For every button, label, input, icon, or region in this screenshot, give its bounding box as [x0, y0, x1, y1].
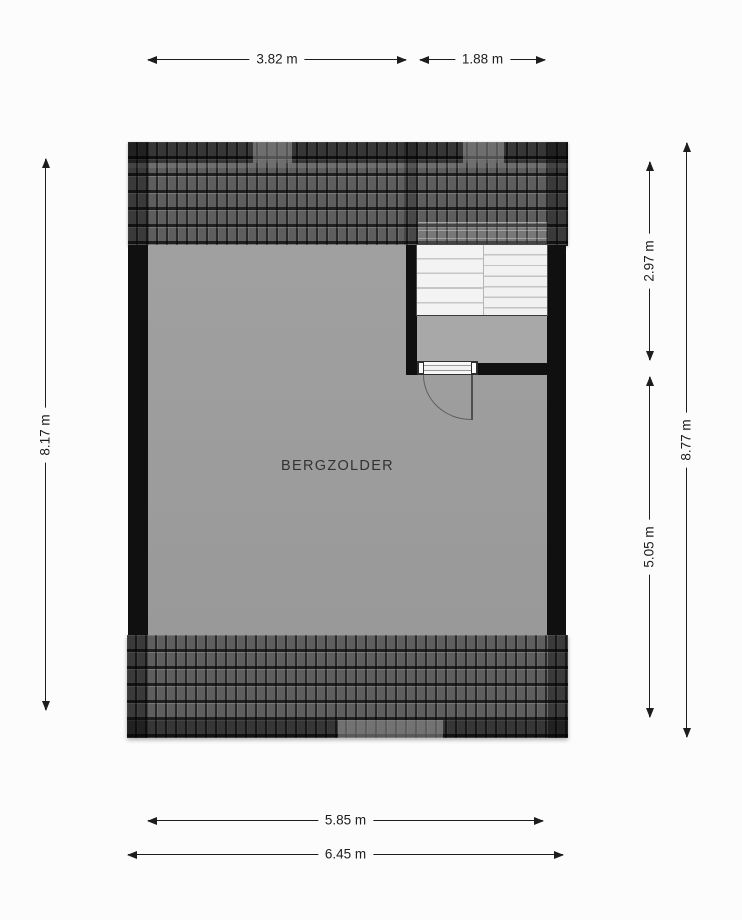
stair-landing	[417, 315, 547, 363]
roof-bottom-eave-shading	[127, 720, 568, 738]
dimension-label: 1.88 m	[455, 52, 510, 69]
dimension-bottom-outer-width: 6.45 m	[128, 854, 563, 855]
dimension-bottom-inner-width: 5.85 m	[148, 820, 543, 821]
dimension-right-stairwell-depth: 2.97 m	[649, 162, 650, 360]
roof-top-left-edge	[128, 142, 149, 246]
dimension-right-total-height: 8.77 m	[686, 143, 687, 737]
arrow-down-icon	[646, 351, 654, 361]
dimension-label: 2.97 m	[642, 233, 659, 288]
staircase	[417, 245, 547, 315]
arrow-up-icon	[42, 158, 50, 168]
door-panel-line	[471, 375, 473, 420]
dimension-left-height: 8.17 m	[45, 159, 46, 710]
dimension-label: 8.17 m	[38, 407, 55, 462]
stair-flight-right	[484, 245, 547, 315]
arrow-left-icon	[147, 56, 157, 64]
arrow-up-icon	[646, 376, 654, 386]
dimension-label: 5.85 m	[318, 813, 373, 830]
dimension-label: 5.05 m	[642, 519, 659, 574]
door-post-left	[418, 362, 424, 374]
dimension-top-stair-width: 1.88 m	[420, 59, 545, 60]
dimension-label: 6.45 m	[318, 847, 373, 864]
roof-top-right-edge	[548, 142, 568, 246]
roof-window-left	[253, 142, 292, 163]
arrow-up-icon	[683, 142, 691, 152]
stair-flight-left	[417, 245, 484, 315]
arrow-left-icon	[147, 817, 157, 825]
roof-top	[128, 142, 568, 246]
staircase-under-roof	[418, 222, 547, 246]
roof-seam	[404, 142, 418, 246]
arrow-right-icon	[534, 817, 544, 825]
floor-plan: BERGZOLDER 3.82 m 1.88 m 8.17 m 2.97 m 5…	[0, 0, 742, 920]
wall-stairwell-bottom	[477, 362, 566, 375]
door-frame	[417, 361, 478, 375]
dimension-top-room-width: 3.82 m	[148, 59, 406, 60]
arrow-down-icon	[42, 701, 50, 711]
roof-bottom	[127, 635, 568, 738]
arrow-up-icon	[646, 161, 654, 171]
arrow-down-icon	[683, 728, 691, 738]
wall-left	[128, 245, 148, 635]
arrow-left-icon	[419, 56, 429, 64]
wall-right	[547, 245, 566, 635]
arrow-right-icon	[554, 851, 564, 859]
arrow-left-icon	[127, 851, 137, 859]
dimension-right-room-depth: 5.05 m	[649, 377, 650, 717]
roof-top-highlight	[128, 163, 568, 168]
roof-bottom-window	[338, 720, 443, 738]
arrow-down-icon	[646, 708, 654, 718]
room-label: BERGZOLDER	[240, 458, 435, 474]
roof-window-right	[463, 142, 504, 163]
dimension-label: 8.77 m	[679, 412, 696, 467]
roof-bottom-left-edge	[127, 635, 148, 738]
roof-top-ridge-shading	[128, 142, 568, 163]
arrow-right-icon	[536, 56, 546, 64]
arrow-right-icon	[397, 56, 407, 64]
dimension-label: 3.82 m	[249, 52, 304, 69]
door-post-right	[471, 362, 477, 374]
roof-bottom-right-edge	[548, 635, 568, 738]
